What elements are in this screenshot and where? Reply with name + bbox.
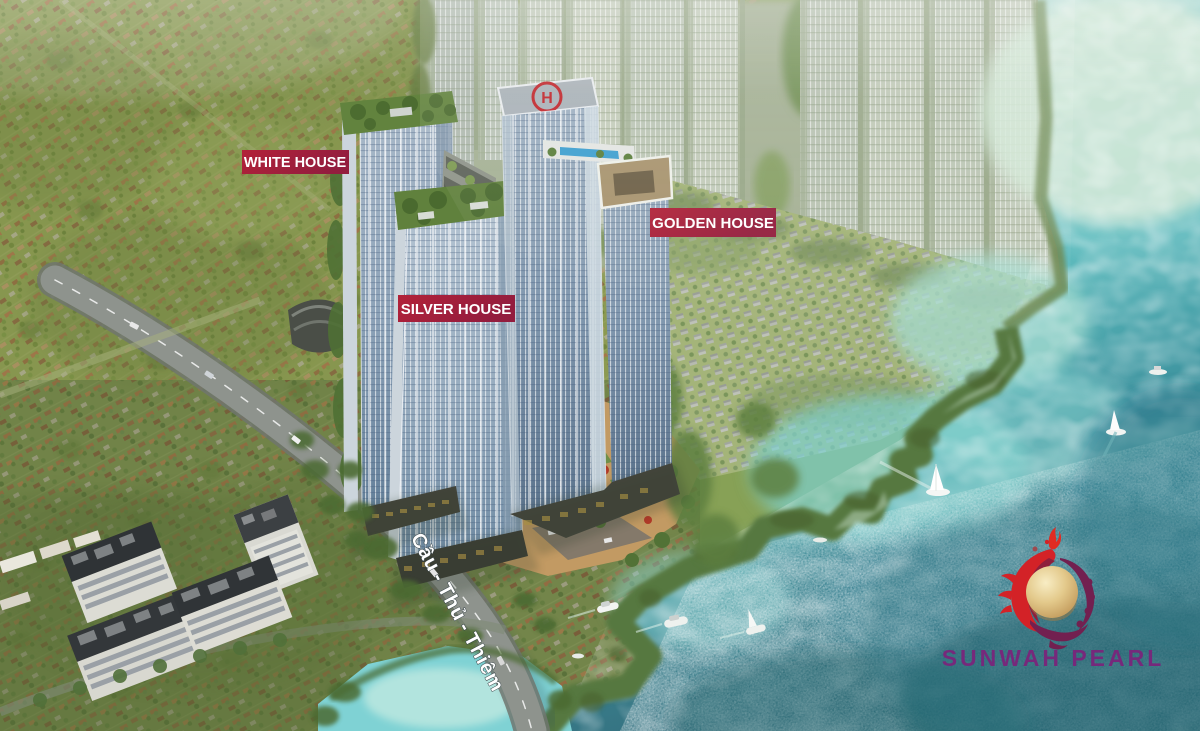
svg-text:WHITE HOUSE: WHITE HOUSE bbox=[244, 155, 347, 171]
svg-text:SILVER HOUSE: SILVER HOUSE bbox=[401, 301, 512, 318]
svg-text:SUNWAH PEARL: SUNWAH PEARL bbox=[942, 645, 1165, 671]
